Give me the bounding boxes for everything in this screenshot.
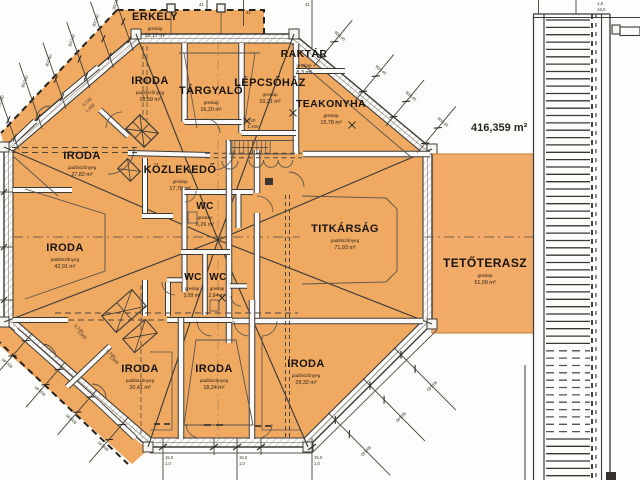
svg-text:1,0: 1,0 [314, 461, 320, 466]
svg-text:8,3 m²: 8,3 m² [296, 70, 311, 76]
svg-text:1,0: 1,0 [239, 461, 245, 466]
svg-text:LÉPCSŐHÁZ: LÉPCSŐHÁZ [234, 76, 305, 89]
svg-text:greslap: greslap [172, 179, 188, 184]
svg-text:42,91 m²: 42,91 m² [54, 264, 75, 270]
svg-text:15,78 m²: 15,78 m² [320, 120, 341, 126]
svg-text:6,26 m²: 6,26 m² [196, 222, 214, 228]
svg-text:greslap: greslap [262, 92, 278, 97]
svg-text:10,17 m²: 10,17 m² [144, 33, 165, 39]
svg-text:IRODA: IRODA [131, 75, 168, 87]
svg-text:IRODA: IRODA [121, 363, 158, 375]
svg-text:1,0: 1,0 [165, 461, 171, 466]
svg-text:WC: WC [184, 272, 201, 283]
svg-text:greslap: greslap [185, 286, 200, 291]
svg-text:greslap: greslap [203, 100, 219, 105]
svg-text:padlószőnyeg: padlószőnyeg [68, 165, 97, 170]
svg-text:padlószőnyeg: padlószőnyeg [51, 257, 80, 262]
svg-text:greslap: greslap [210, 286, 225, 291]
svg-text:WC: WC [196, 201, 213, 212]
svg-text:41: 41 [246, 10, 252, 15]
svg-text:3,09 m²: 3,09 m² [184, 293, 201, 299]
svg-text:padlószőnyeg: padlószőnyeg [126, 378, 155, 383]
svg-text:padlószőnyeg: padlószőnyeg [331, 238, 360, 243]
svg-text:2,94 m²: 2,94 m² [209, 293, 226, 299]
svg-text:IRODA: IRODA [46, 242, 83, 254]
svg-text:15,0: 15,0 [239, 455, 248, 460]
svg-text:1,5: 1,5 [597, 1, 604, 6]
svg-text:51,09 m²: 51,09 m² [474, 280, 495, 286]
svg-text:padlószőnyeg: padlószőnyeg [292, 373, 321, 378]
svg-text:20,41 m²: 20,41 m² [129, 385, 150, 391]
svg-text:greslap: greslap [296, 63, 312, 68]
svg-text:41: 41 [199, 2, 205, 7]
svg-text:41: 41 [305, 2, 311, 7]
svg-text:TETŐTERASZ: TETŐTERASZ [443, 255, 527, 270]
svg-text:greslap: greslap [147, 26, 163, 31]
svg-text:0,740: 0,740 [245, 118, 257, 123]
svg-text:ERKÉLY: ERKÉLY [132, 10, 178, 23]
svg-text:16,5: 16,5 [597, 7, 606, 12]
svg-text:29,32 m²: 29,32 m² [295, 380, 316, 386]
svg-text:greslap: greslap [197, 215, 213, 220]
svg-text:416,359 m²: 416,359 m² [471, 122, 528, 134]
svg-text:greslap: greslap [477, 273, 493, 278]
svg-text:15,0: 15,0 [314, 455, 323, 460]
svg-text:1,400: 1,400 [248, 124, 260, 129]
svg-text:WC: WC [209, 272, 226, 283]
svg-text:27,82 m²: 27,82 m² [71, 172, 92, 178]
svg-text:padlószőnyeg: padlószőnyeg [136, 90, 165, 95]
svg-text:18,59 m²: 18,59 m² [139, 97, 160, 103]
svg-text:18,24 m²: 18,24 m² [203, 385, 224, 391]
svg-text:KÖZLEKEDŐ: KÖZLEKEDŐ [144, 163, 217, 176]
svg-text:16,20 m²: 16,20 m² [200, 107, 221, 113]
svg-text:greslap: greslap [323, 113, 339, 118]
svg-text:TITKÁRSÁG: TITKÁRSÁG [311, 222, 379, 235]
svg-text:15,0: 15,0 [165, 455, 174, 460]
svg-text:10,21 m²: 10,21 m² [259, 99, 280, 105]
svg-text:17,78 m²: 17,78 m² [169, 186, 190, 192]
svg-text:IRODA: IRODA [195, 363, 232, 375]
svg-text:padlószőnyeg: padlószőnyeg [200, 378, 229, 383]
svg-text:71,93 m²: 71,93 m² [334, 245, 355, 251]
svg-text:IRODA: IRODA [287, 358, 324, 370]
svg-text:IRODA: IRODA [63, 150, 100, 162]
